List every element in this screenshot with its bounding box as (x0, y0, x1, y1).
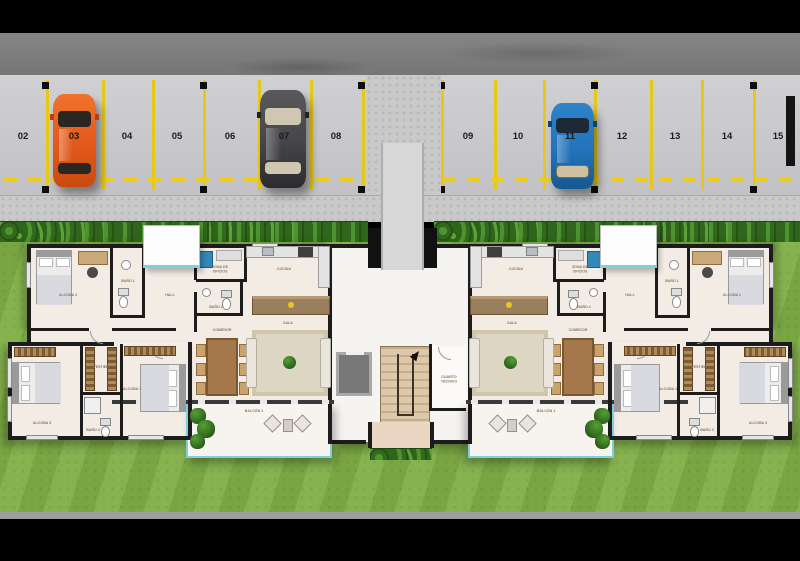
bed-headboard (615, 365, 621, 411)
room-label-alcoba-1: ALCOBA 1 (659, 388, 677, 392)
room-label-bano-3: BAÑO 3 (700, 429, 714, 433)
parking-space-number: 07 (273, 131, 295, 142)
bed-headboard (729, 251, 763, 257)
dining-chair (594, 344, 604, 357)
car-rear-window (265, 162, 301, 174)
room-label-alcoba-3: ALCOBA 3 (749, 422, 767, 426)
toilet (689, 418, 700, 426)
parking-space-number: 11 (559, 131, 581, 142)
kitchen-sink (526, 247, 538, 256)
room-label-comedor: COMEDOR (569, 329, 588, 333)
bed (740, 362, 788, 404)
toilet-bowl (690, 426, 699, 437)
wall (717, 344, 720, 438)
car-mirror (257, 112, 261, 118)
bottom-curb (0, 512, 800, 519)
balcony-table (507, 419, 517, 432)
entrance-deck-left (143, 225, 200, 268)
wall (557, 279, 560, 316)
bed-pillow (770, 385, 779, 401)
dining-table (562, 338, 594, 396)
parking-space-number: 05 (166, 131, 188, 142)
closet (744, 347, 786, 357)
bed-blanket (739, 363, 765, 403)
room-label-balcon: BALCÓN 1 (245, 410, 263, 414)
room-label-alcoba-3: ALCOBA 3 (33, 422, 51, 426)
dining-chair (594, 363, 604, 376)
car-mirror (593, 121, 597, 127)
room-label-vestier: VESTIER (691, 366, 706, 370)
car-mirror (95, 114, 99, 120)
entry-column (368, 228, 381, 268)
wall (711, 328, 773, 331)
room-label-hall: HALL (625, 294, 635, 298)
toilet (568, 290, 579, 298)
bed-pillow (770, 366, 779, 382)
parking-space-number: 15 (767, 131, 789, 142)
parking-space-number: 13 (664, 131, 686, 142)
room-label-alcoba-2: ALCOBA 2 (723, 294, 741, 298)
bed-pillow (747, 258, 761, 267)
desk (692, 251, 722, 265)
parking-space-number: 09 (457, 131, 479, 142)
bed-blanket (729, 275, 763, 305)
balcony-plant (595, 434, 610, 449)
window (636, 435, 672, 440)
bed-pillow (730, 258, 744, 267)
wall (677, 344, 680, 438)
sofa (543, 338, 554, 388)
parking-space-number: 10 (507, 131, 529, 142)
wall (556, 279, 604, 282)
room-label-comedor: COMEDOR (213, 329, 232, 333)
wall (557, 313, 604, 316)
car-windshield (265, 108, 301, 125)
car-rear-window (58, 163, 91, 174)
parking-space-number: 04 (116, 131, 138, 142)
wall (650, 244, 773, 248)
parking-space-number: 02 (12, 131, 34, 142)
parking-space-number: 14 (716, 131, 738, 142)
kitchen-counter (470, 246, 554, 258)
dining-chair (594, 382, 604, 395)
desk-chair (702, 267, 713, 278)
parking-space-number: 08 (325, 131, 347, 142)
wall (680, 392, 718, 395)
wall (687, 244, 690, 316)
parking-space-number: 12 (611, 131, 633, 142)
car-windshield (58, 111, 91, 127)
room-label-cocina: COCINA (509, 268, 523, 272)
bottom-letterbox (0, 519, 800, 561)
room-label-cocina: COCINA (277, 268, 291, 272)
shower (699, 397, 716, 414)
wall (624, 328, 688, 331)
room-label-sala: SALA (507, 322, 517, 326)
car-mirror (305, 112, 309, 118)
room-label-vestier: VESTIER (93, 366, 108, 370)
stove (487, 247, 502, 257)
wall (788, 342, 792, 440)
closet (624, 346, 676, 356)
room-label-hall: HALL (165, 294, 175, 298)
plant (504, 356, 517, 369)
room-label-cuarto-tecnico: CUARTO TÉCNICO (436, 376, 462, 384)
window (788, 358, 793, 388)
car-rear-window (556, 165, 589, 178)
room-label-alcoba-1: ALCOBA 1 (123, 388, 141, 392)
car-mirror (548, 121, 552, 127)
room-label-bano-2: BAÑO 2 (577, 306, 591, 310)
window (742, 435, 774, 440)
toilet (671, 288, 682, 296)
apartment-right: ALCOBA 2 BAÑO 1 HALL ZONA DE OFICIOS BAÑ… (0, 0, 800, 561)
fruit-bowl (506, 302, 512, 308)
wall (655, 315, 690, 318)
wall (603, 292, 606, 332)
room-label-bano-1: BAÑO 1 (121, 280, 135, 284)
car-blue (551, 103, 594, 189)
floor-plan-scene: 02 03 04 05 06 07 08 09 10 11 12 13 14 1… (0, 0, 800, 561)
parking-space-number: 03 (63, 131, 85, 142)
wall (608, 342, 612, 436)
sofa (469, 338, 480, 388)
bed-headboard (781, 363, 787, 403)
room-label-oficios: ZONA DE OFICIOS (567, 266, 593, 274)
kitchen-counter-side (470, 246, 482, 288)
room-label-alcoba-2: ALCOBA 2 (59, 294, 77, 298)
room-label-bano-1: BAÑO 1 (665, 280, 679, 284)
laundry-counter (558, 250, 584, 261)
car-mirror (50, 114, 54, 120)
room-label-bano-2: BAÑO 2 (209, 306, 223, 310)
window (788, 396, 793, 422)
entry-ramp (381, 143, 424, 270)
parking-space-number: 06 (219, 131, 241, 142)
bed (614, 364, 660, 412)
room-label-bano-3: BAÑO 3 (86, 429, 100, 433)
sink (669, 260, 679, 270)
room-label-sala: SALA (283, 322, 293, 326)
bed-blanket (631, 365, 659, 411)
window (769, 262, 774, 288)
room-label-balcon: BALCÓN 1 (537, 410, 555, 414)
entrance-deck-right (600, 225, 657, 268)
room-label-oficios: ZONA DE OFICIOS (207, 266, 233, 274)
toilet-bowl (672, 296, 681, 308)
sink (589, 288, 598, 297)
entry-column (424, 228, 437, 268)
